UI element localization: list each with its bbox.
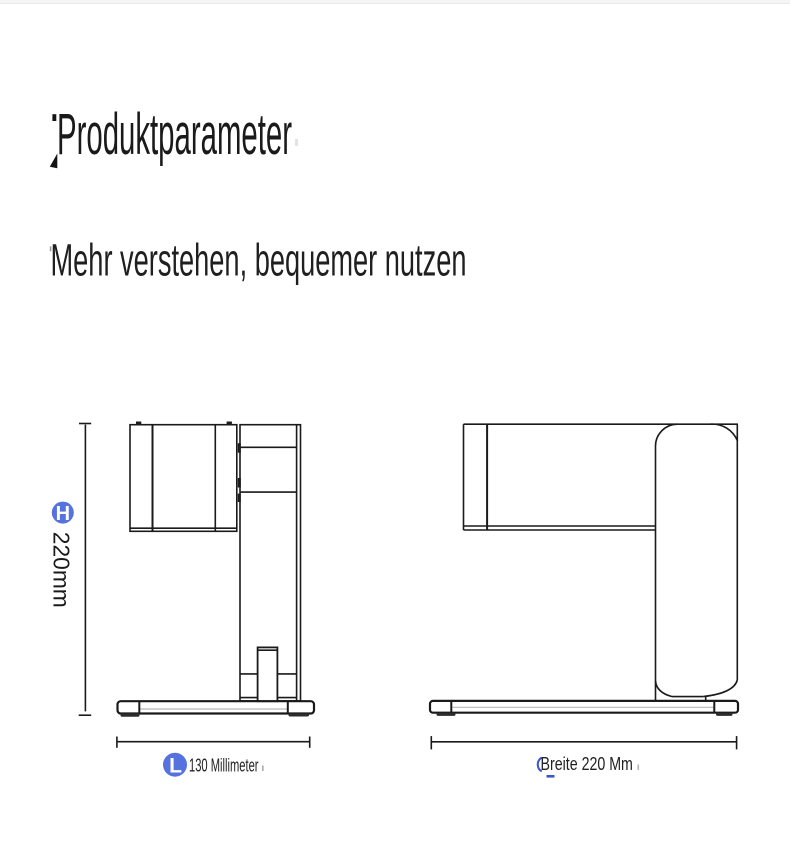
svg-text:Breite 220 Mm: Breite 220 Mm <box>541 754 633 774</box>
svg-text:130 Millimeter: 130 Millimeter <box>189 754 259 775</box>
svg-text:220mm: 220mm <box>48 532 74 608</box>
svg-text:L: L <box>169 754 182 777</box>
svg-text:Produktparameter: Produktparameter <box>57 102 292 167</box>
svg-text:Mehr verstehen, bequemer nutze: Mehr verstehen, bequemer nutzen <box>51 234 467 285</box>
svg-text:H: H <box>56 503 70 525</box>
